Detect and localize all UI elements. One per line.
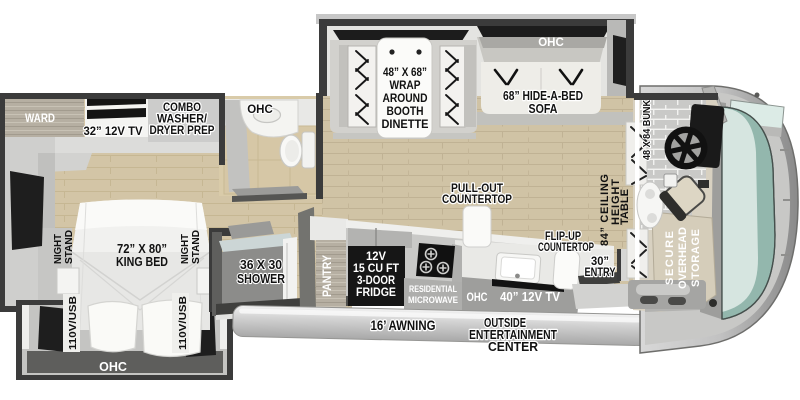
svg-text:40” 12V TV: 40” 12V TV xyxy=(500,289,560,304)
svg-text:OHC: OHC xyxy=(247,104,273,116)
svg-text:COUNTERTOP: COUNTERTOP xyxy=(442,194,512,206)
svg-text:DINETTE: DINETTE xyxy=(382,119,429,131)
svg-text:STORAGE: STORAGE xyxy=(690,229,702,287)
svg-text:110V/USB: 110V/USB xyxy=(177,296,189,350)
svg-text:SOFA: SOFA xyxy=(529,101,558,116)
svg-text:OHC: OHC xyxy=(99,360,127,374)
svg-text:BOOTH: BOOTH xyxy=(387,106,424,118)
svg-text:48” X 68”: 48” X 68” xyxy=(383,67,427,79)
svg-text:15 CU FT: 15 CU FT xyxy=(353,263,399,275)
svg-text:SECURE: SECURE xyxy=(664,231,676,285)
svg-text:WRAP: WRAP xyxy=(390,80,421,92)
svg-text:72” X 80”: 72” X 80” xyxy=(117,242,167,256)
svg-text:OHC: OHC xyxy=(538,37,564,49)
svg-text:DRYER PREP: DRYER PREP xyxy=(150,125,215,137)
svg-text:WASHER/: WASHER/ xyxy=(157,114,208,126)
svg-text:STAND: STAND xyxy=(63,230,75,264)
svg-text:OVERHEAD: OVERHEAD xyxy=(677,227,689,289)
svg-text:CENTER: CENTER xyxy=(488,340,538,354)
svg-text:KING BED: KING BED xyxy=(116,255,168,269)
svg-text:MICROWAVE: MICROWAVE xyxy=(408,295,458,306)
svg-text:SHOWER: SHOWER xyxy=(237,271,286,286)
svg-text:RESIDENTIAL: RESIDENTIAL xyxy=(409,284,457,295)
svg-text:STAND: STAND xyxy=(190,230,202,264)
svg-text:110V/USB: 110V/USB xyxy=(67,296,79,350)
svg-text:48 X 84 BUNK: 48 X 84 BUNK xyxy=(641,100,653,160)
svg-text:ENTRY: ENTRY xyxy=(585,267,616,279)
svg-text:AROUND: AROUND xyxy=(383,93,428,105)
svg-text:36 X 30: 36 X 30 xyxy=(240,257,282,272)
svg-text:3-DOOR: 3-DOOR xyxy=(357,275,396,287)
svg-text:COUNTERTOP: COUNTERTOP xyxy=(538,242,594,254)
svg-text:12V: 12V xyxy=(366,251,386,263)
svg-text:FRIDGE: FRIDGE xyxy=(356,287,396,299)
svg-text:OHC: OHC xyxy=(467,290,488,304)
svg-text:PANTRY: PANTRY xyxy=(322,255,334,297)
svg-text:WARD: WARD xyxy=(25,111,55,125)
svg-text:32” 12V TV: 32” 12V TV xyxy=(84,126,143,138)
svg-text:HEIGHT: HEIGHT xyxy=(610,179,622,225)
svg-text:COMBO: COMBO xyxy=(163,102,201,114)
svg-text:16’ AWNING: 16’ AWNING xyxy=(371,318,436,333)
